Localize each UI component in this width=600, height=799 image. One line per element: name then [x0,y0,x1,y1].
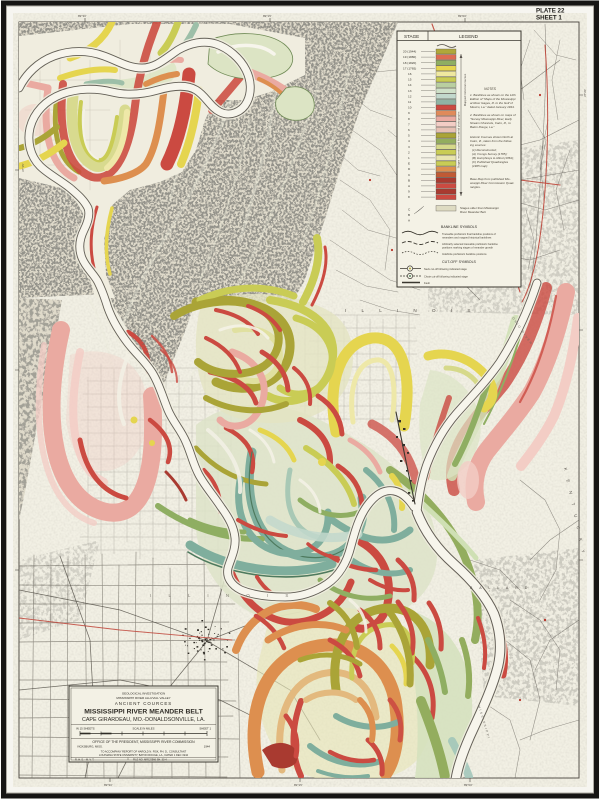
svg-text:9: 9 [408,190,410,194]
svg-text:VICKSBURG, MISS.: VICKSBURG, MISS. [77,745,103,749]
svg-text:CUT-OFF SYMBOLS: CUT-OFF SYMBOLS [442,260,477,264]
svg-text:15: 15 [408,78,412,82]
svg-text:Mapped historical courses: Mapped historical courses [463,73,467,106]
svg-text:19 (1880): 19 (1880) [403,55,416,59]
svg-text:ing sources:: ing sources: [470,143,486,147]
svg-text:6: 6 [408,128,410,132]
svg-text:13: 13 [408,89,412,93]
svg-text:Baton Rouge, La.": Baton Rouge, La." [470,125,495,129]
svg-text:SCALE IN MILES: SCALE IN MILES [133,727,155,731]
svg-text:positions marking stages of me: positions marking stages of meander grow… [442,246,493,250]
svg-text:B A L L A R D: B A L L A R D [470,586,530,590]
svg-text:MISSISSIPPI RIVER MEANDER BELT: MISSISSIPPI RIVER MEANDER BELT [84,709,203,716]
svg-text:14: 14 [408,83,412,87]
svg-text:89°30': 89°30' [78,14,87,18]
svg-text:37°20': 37°20' [583,89,587,97]
svg-text:3: 3 [408,145,410,149]
svg-text:8: 8 [408,117,410,121]
svg-text:11: 11 [408,100,411,104]
svg-text:rangles.: rangles. [470,185,481,189]
svg-text:89°15': 89°15' [263,14,272,18]
svg-text:NOTES: NOTES [484,87,496,91]
svg-text:2: 2 [408,150,410,154]
svg-text:PLATE 22: PLATE 22 [536,8,565,15]
svg-text:ANCIENT COURCES: ANCIENT COURCES [115,701,172,706]
svg-text:River Meander Belt: River Meander Belt [460,210,486,214]
svg-text:GEOLOGICAL INVESTIGATION: GEOLOGICAL INVESTIGATION [122,692,165,696]
svg-text:FILE NO. MRC/2566 SH. 33-4: FILE NO. MRC/2566 SH. 33-4 [133,759,167,762]
svg-text:1944: 1944 [204,745,211,749]
svg-text:18 (1820): 18 (1820) [403,61,416,65]
svg-text:9: 9 [408,111,410,115]
svg-text:Fault: Fault [424,281,430,285]
svg-text:Indefinite prehistoric banklin: Indefinite prehistoric bankline position… [442,252,487,256]
svg-text:TO ACCOMPANY REPORT OF HAROLD: TO ACCOMPANY REPORT OF HAROLD N. FISK, P… [101,750,187,754]
svg-text:meanders and mapped historical: meanders and mapped historical banklines [442,236,492,240]
svg-text:SHEET 1: SHEET 1 [199,727,211,731]
svg-text:I L L I N O I S: I L L I N O I S [150,593,296,598]
svg-text:OFFICE OF THE PRESIDENT, MISSI: OFFICE OF THE PRESIDENT, MISSISSIPPI RIV… [92,740,195,744]
svg-text:B: B [408,178,410,182]
svg-text:20 (1944): 20 (1944) [403,50,416,54]
svg-text:12: 12 [408,94,412,98]
svg-text:SHEET 1: SHEET 1 [536,15,562,22]
svg-text:(1905 map): (1905 map) [472,164,487,168]
svg-text:4: 4 [408,139,410,143]
svg-text:Neck cut-off following indicat: Neck cut-off following indicated stage [424,267,467,271]
svg-text:89°15': 89°15' [294,783,303,787]
svg-text:17 (1765): 17 (1765) [403,66,416,70]
svg-text:Traceable prehistoric final ba: Traceable prehistoric final bankline pos… [442,232,496,236]
svg-text:I L L I N O I S: I L L I N O I S [345,308,478,313]
svg-text:89°30': 89°30' [104,783,113,787]
svg-text:8: 8 [408,195,410,199]
svg-text:R. H. S. - M. V. T.: R. H. S. - M. V. T. [75,759,94,762]
svg-text:IN 15 SHEETS: IN 15 SHEETS [76,727,95,731]
svg-text:Mexico, La." dated January 194: Mexico, La." dated January 1944. [470,105,515,109]
svg-text:89°00': 89°00' [464,783,473,787]
svg-text:B: B [408,213,410,217]
svg-text:89°00': 89°00' [458,14,467,18]
svg-text:16: 16 [408,72,412,76]
svg-text:MISSISSIPPI RIVER ALLUVIAL VAL: MISSISSIPPI RIVER ALLUVIAL VALLEY [116,696,170,700]
svg-text:LEGEND: LEGEND [459,34,479,39]
svg-text:Chute cut-off following indica: Chute cut-off following indicated stage [424,275,468,279]
svg-text:E: E [408,162,410,166]
svg-text:37°15': 37°15' [21,163,25,172]
svg-text:BANKLINE SYMBOLS: BANKLINE SYMBOLS [441,225,478,229]
svg-text:CAPE GIRARDEAU, MO.-DONALDSONV: CAPE GIRARDEAU, MO.-DONALDSONVILLE, LA. [82,717,205,723]
svg-text:10: 10 [408,106,412,110]
svg-text:5: 5 [408,134,410,138]
svg-text:Arbitrarily selected traceable: Arbitrarily selected traceable prehistor… [442,242,498,246]
svg-text:STAGE: STAGE [404,34,419,39]
svg-text:Stages reconstructed from aeri: Stages reconstructed from aerial photogr… [457,111,461,168]
svg-text:LOUISIANA STATE UNIVERSITY, BA: LOUISIANA STATE UNIVERSITY, BATON ROUGE,… [99,753,188,757]
svg-text:7: 7 [408,122,410,126]
svg-text:1: 1 [408,156,410,160]
